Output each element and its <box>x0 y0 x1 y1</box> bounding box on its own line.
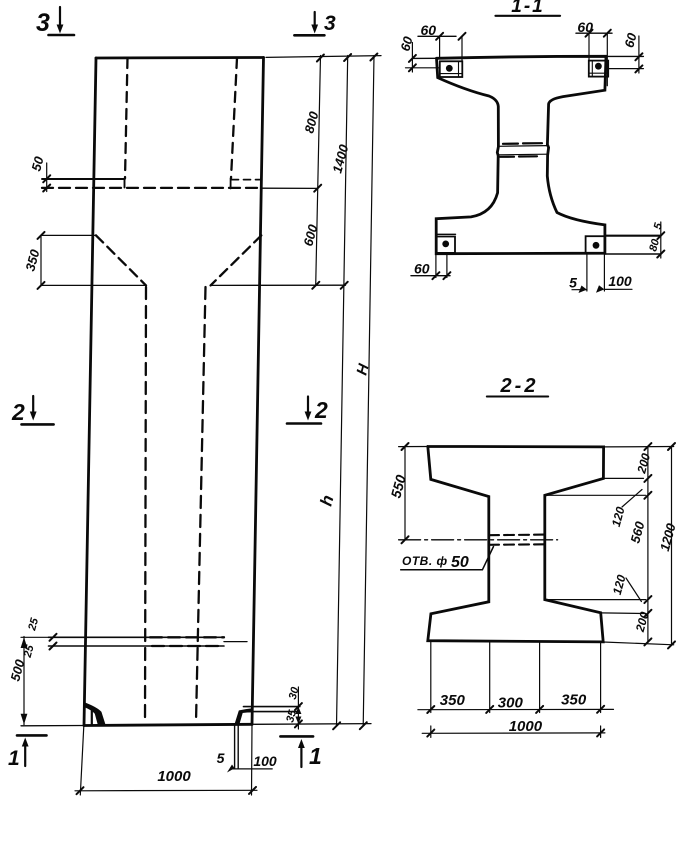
svg-text:60: 60 <box>421 22 437 38</box>
svg-text:300: 300 <box>498 695 524 712</box>
svg-text:2: 2 <box>314 397 328 423</box>
svg-text:1-1: 1-1 <box>511 0 544 17</box>
svg-text:100: 100 <box>253 753 277 769</box>
svg-text:3: 3 <box>324 12 336 35</box>
svg-text:1: 1 <box>8 747 20 770</box>
svg-text:1000: 1000 <box>509 718 543 735</box>
svg-text:60: 60 <box>577 19 593 35</box>
svg-text:5: 5 <box>217 750 225 766</box>
svg-text:350: 350 <box>561 692 587 709</box>
svg-text:1: 1 <box>309 743 322 769</box>
svg-text:350: 350 <box>440 692 466 709</box>
svg-text:50: 50 <box>451 554 469 571</box>
svg-text:3: 3 <box>36 9 50 37</box>
svg-text:2: 2 <box>11 399 25 425</box>
svg-text:5: 5 <box>569 275 577 291</box>
svg-text:100: 100 <box>608 273 632 289</box>
svg-text:2-2: 2-2 <box>500 375 539 397</box>
svg-text:60: 60 <box>414 261 430 277</box>
svg-text:1000: 1000 <box>157 768 191 785</box>
svg-text:ОТВ. ф: ОТВ. ф <box>402 554 448 568</box>
